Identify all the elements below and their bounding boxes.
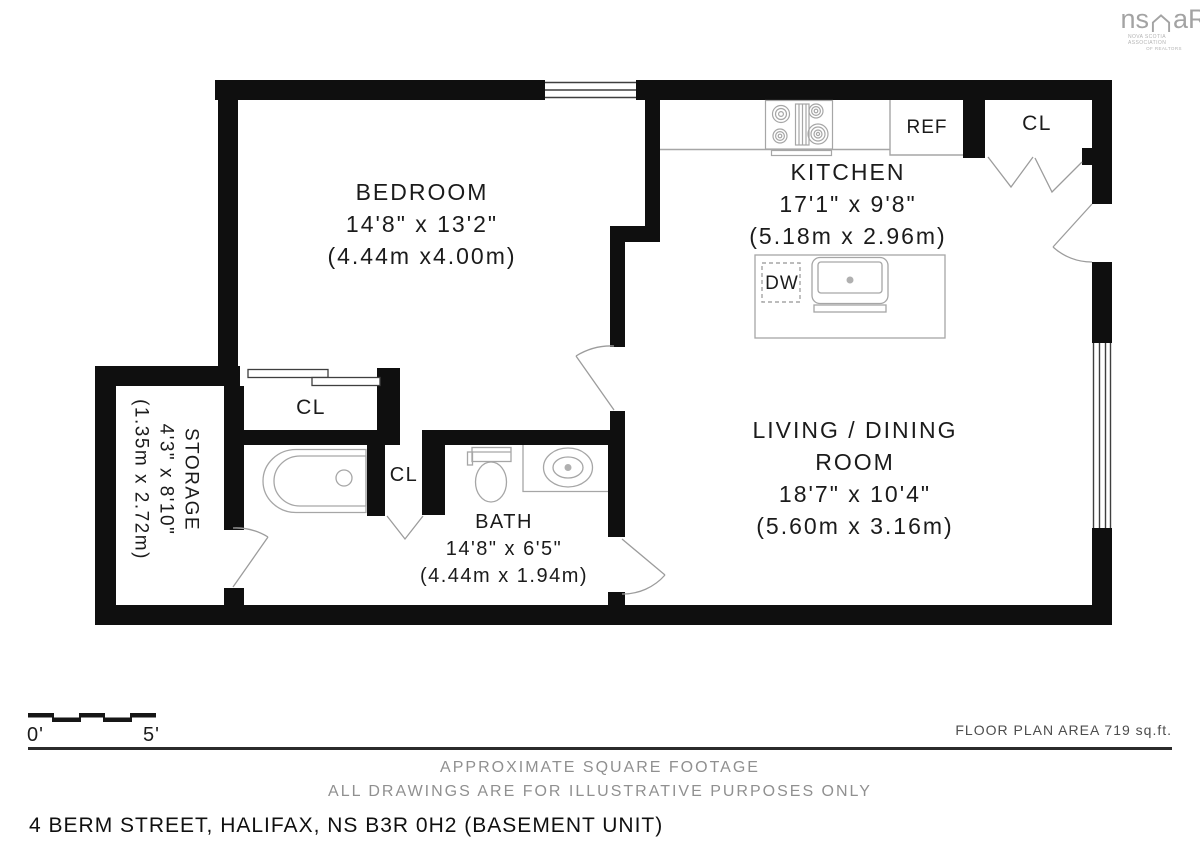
wall-bedroom-west [218, 80, 238, 386]
wall-hall-closet-east [422, 430, 445, 515]
bifold-door-hall-closet [387, 516, 423, 539]
bedroom-window-icon [545, 83, 636, 98]
wall-kitchen-closet-divider [963, 100, 985, 158]
floor-plan-area-note: FLOOR PLAN AREA 719 sq.ft. [955, 722, 1172, 738]
living-name-line1: LIVING / DINING [752, 414, 957, 446]
wall-entry-jamb [1082, 148, 1092, 165]
dishwasher-label: DW [765, 273, 799, 295]
bedroom-name: BEDROOM [327, 176, 516, 208]
bathroom-sink-icon [544, 448, 593, 487]
divider-rule [28, 747, 1172, 750]
stove-icon [766, 101, 833, 156]
wall-top-left [215, 80, 545, 100]
closet-label-bedroom: CL [296, 396, 326, 420]
storage-label-block: STORAGE 4'3" x 8'10" (1.35m x 2.72m) [129, 385, 204, 575]
kitchen-label-block: KITCHEN 17'1" x 9'8" (5.18m x 2.96m) [749, 156, 946, 252]
floor-plan-page: BEDROOM 14'8" x 13'2" (4.44m x4.00m) KIT… [0, 0, 1200, 848]
logo-text-right: aR [1173, 6, 1200, 33]
logo-text-left: ns [1120, 6, 1149, 33]
scale-bar [28, 713, 156, 722]
bath-name: BATH [420, 509, 588, 536]
closet-label-hall: CL [390, 464, 419, 487]
kitchen-island-outline [755, 255, 945, 338]
disclaimer-line2: ALL DRAWINGS ARE FOR ILLUSTRATIVE PURPOS… [328, 783, 872, 801]
bath-dims-imperial: 14'8" x 6'5" [420, 536, 588, 563]
toilet-icon [468, 448, 512, 503]
storage-dims-metric: (1.35m x 2.72m) [129, 385, 154, 575]
wall-storage-west [95, 366, 116, 625]
wall-storage-door-stub [224, 588, 244, 605]
refrigerator-label: REF [907, 117, 948, 139]
closet-label-entry: CL [1022, 112, 1052, 136]
storage-name: STORAGE [179, 385, 204, 575]
wall-bottom [95, 605, 1112, 625]
bifold-door-entry-closet [988, 157, 1082, 192]
house-icon [1150, 13, 1172, 33]
disclaimer-line1: APPROXIMATE SQUARE FOOTAGE [440, 759, 760, 777]
living-room-window-icon [1094, 343, 1111, 528]
wall-east-upper [1092, 80, 1112, 204]
kitchen-name: KITCHEN [749, 156, 946, 188]
wall-bath-east [608, 445, 625, 537]
living-dims-metric: (5.60m x 3.16m) [752, 510, 957, 542]
kitchen-dims-imperial: 17'1" x 9'8" [749, 188, 946, 220]
wall-top-right [636, 80, 1112, 100]
living-dims-imperial: 18'7" x 10'4" [752, 478, 957, 510]
wall-closet-east [377, 368, 400, 430]
living-name-line2: ROOM [752, 446, 957, 478]
bathtub-icon [263, 450, 366, 513]
nsar-logo: ns aR NOVA SCOTIA ASSOCIATION OF REALTOR… [1128, 6, 1200, 51]
wall-east-mid [1092, 262, 1112, 343]
living-label-block: LIVING / DINING ROOM 18'7" x 10'4" (5.60… [752, 414, 957, 542]
vanity-counter-line [523, 445, 608, 492]
scale-end-label: 5' [143, 724, 160, 747]
kitchen-dims-metric: (5.18m x 2.96m) [749, 220, 946, 252]
wall-bedroom-door-stub [610, 411, 625, 445]
wall-east-lower [1092, 528, 1112, 625]
storage-dims-imperial: 4'3" x 8'10" [154, 385, 179, 575]
wall-closet-south [238, 430, 400, 445]
door-arc-storage [233, 528, 268, 587]
door-arc-bath [622, 539, 665, 594]
wall-storage-north [95, 366, 240, 386]
bedroom-dims-metric: (4.44m x4.00m) [327, 240, 516, 272]
bedroom-dims-imperial: 14'8" x 13'2" [327, 208, 516, 240]
wall-bath-door-stub [608, 592, 625, 605]
nsar-logo-wordmark: ns aR [1120, 6, 1200, 33]
sliding-doors-bedroom-closet [248, 370, 380, 386]
logo-caption-line2: OF REALTORS [1146, 46, 1182, 51]
wall-bedroom-east-jog [610, 226, 660, 242]
wall-bedroom-east-lower [610, 242, 625, 347]
wall-storage-east [224, 386, 244, 530]
kitchen-sink-icon [812, 258, 888, 313]
door-arc-entry [1053, 204, 1092, 262]
wall-bath-north [445, 430, 612, 445]
bath-dims-metric: (4.44m x 1.94m) [420, 563, 588, 590]
logo-caption-line1: NOVA SCOTIA ASSOCIATION [1128, 34, 1200, 46]
scale-start-label: 0' [27, 724, 44, 747]
wall-hall-closet-west [367, 445, 385, 516]
door-arc-bedroom [576, 346, 614, 410]
bedroom-label-block: BEDROOM 14'8" x 13'2" (4.44m x4.00m) [327, 176, 516, 272]
wall-bedroom-east-upper [645, 100, 660, 227]
bath-label-block: BATH 14'8" x 6'5" (4.44m x 1.94m) [420, 509, 588, 590]
property-address: 4 BERM STREET, HALIFAX, NS B3R 0H2 (BASE… [29, 814, 663, 838]
